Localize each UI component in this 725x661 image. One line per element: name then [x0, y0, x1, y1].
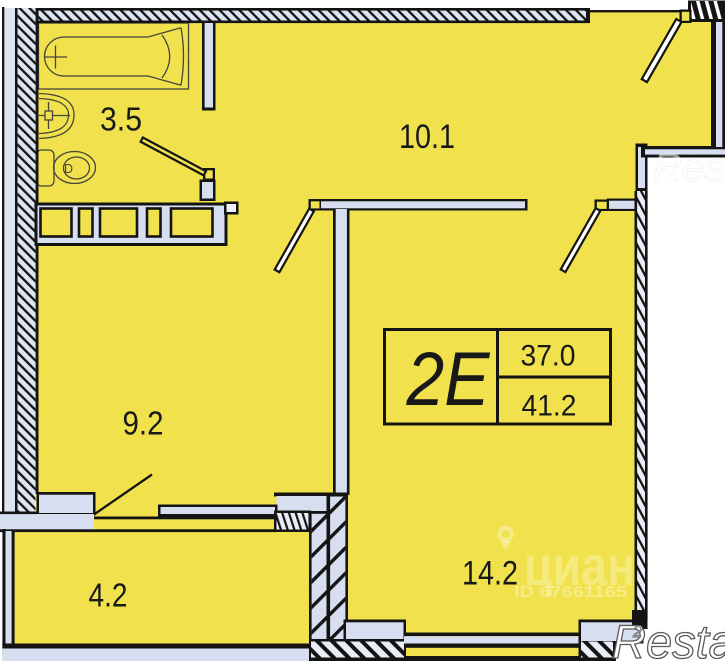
- svg-text:41.2: 41.2: [522, 390, 577, 423]
- svg-text:37.0: 37.0: [521, 340, 576, 373]
- svg-text:2E: 2E: [406, 337, 491, 422]
- svg-text:ID 67661165: ID 67661165: [514, 584, 627, 601]
- svg-text:Restate: Restate: [612, 615, 725, 661]
- svg-text:Restate: Restate: [653, 146, 725, 190]
- svg-text:2: 2: [632, 622, 643, 641]
- svg-text:9.2: 9.2: [123, 405, 164, 442]
- svg-text:D: D: [64, 162, 73, 176]
- svg-text:3.5: 3.5: [100, 101, 142, 138]
- svg-text:4.2: 4.2: [89, 577, 128, 614]
- svg-text:10.1: 10.1: [399, 118, 455, 156]
- svg-text:14.2: 14.2: [462, 555, 518, 593]
